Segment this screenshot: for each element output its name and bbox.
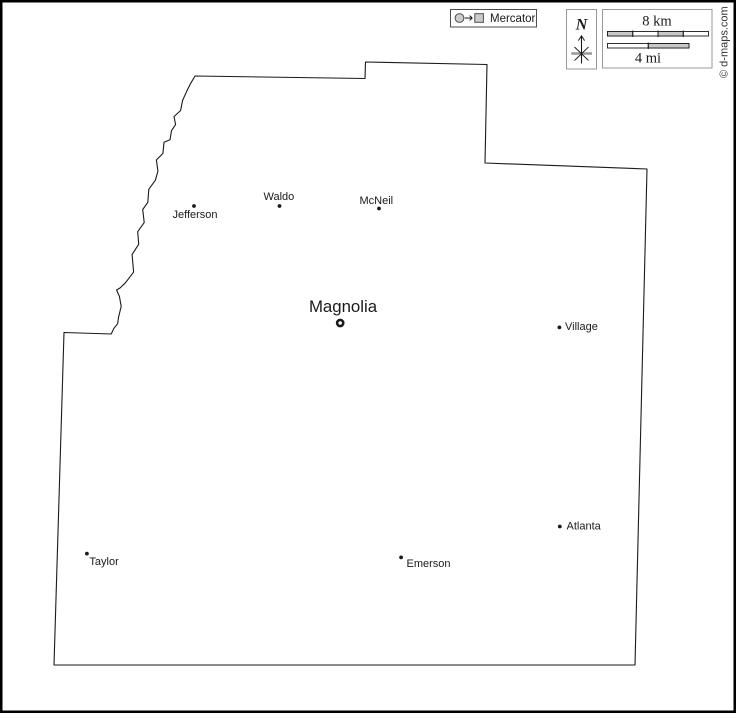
svg-text:McNeil: McNeil: [360, 195, 394, 207]
svg-text:Emerson: Emerson: [407, 558, 451, 570]
svg-text:8 km: 8 km: [642, 14, 672, 30]
svg-text:4 mi: 4 mi: [635, 51, 661, 67]
svg-text:Waldo: Waldo: [264, 191, 295, 203]
svg-text:Magnolia: Magnolia: [309, 297, 378, 316]
svg-text:N: N: [575, 16, 589, 33]
svg-text:Jefferson: Jefferson: [173, 209, 218, 221]
svg-text:Atlanta: Atlanta: [567, 521, 602, 533]
svg-text:Village: Village: [565, 321, 598, 333]
svg-text:© d-maps.com: © d-maps.com: [719, 6, 731, 78]
svg-text:Taylor: Taylor: [89, 556, 119, 568]
svg-text:Mercator: Mercator: [490, 13, 536, 25]
